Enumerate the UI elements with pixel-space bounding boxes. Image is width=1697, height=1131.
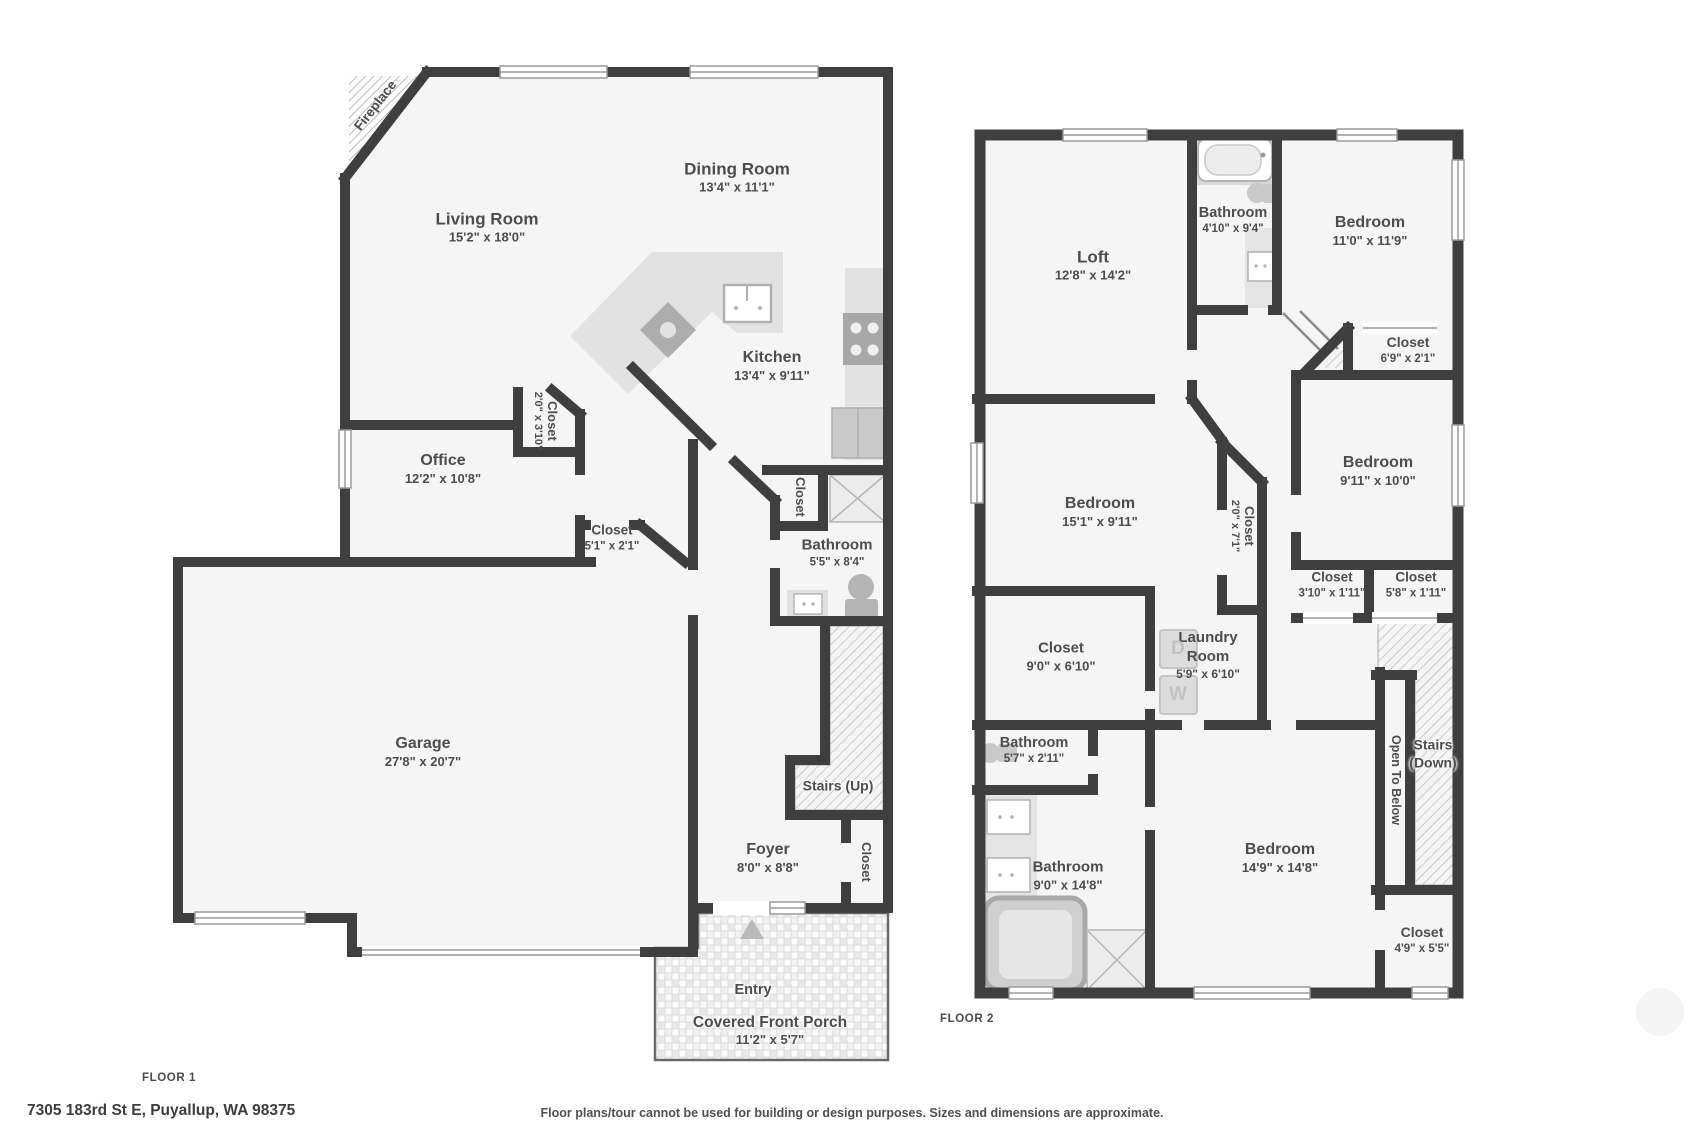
floor2-tag: FLOOR 2	[940, 1013, 994, 1025]
office-label: Office12'2" x 10'8"	[405, 451, 481, 487]
garage-label: Garage27'8" x 20'7"	[385, 734, 461, 770]
loft-label: Loft12'8" x 14'2"	[1055, 246, 1131, 284]
washer-letter: W	[1169, 684, 1187, 706]
stove-icon	[843, 313, 885, 365]
open-to-below-label: Open To Below	[1387, 735, 1403, 825]
bathroom1-label: Bathroom5'5" x 8'4"	[802, 536, 873, 569]
closet-90-label: Closet9'0" x 6'10"	[1026, 640, 1095, 675]
bathroom-57-label: Bathroom5'7" x 2'11"	[1000, 734, 1068, 767]
watermark-circle	[1636, 988, 1684, 1036]
bedroom-top-label: Bedroom11'0" x 11'9"	[1333, 213, 1408, 249]
office-closet-label: Closet2'0" x 3'10"	[530, 392, 560, 450]
bedroom-bottom-label: Bedroom14'9" x 14'8"	[1242, 840, 1318, 876]
laundry-label: Laundry Room 5'9" x 6'10"	[1176, 629, 1240, 682]
floor-plan-page: Fireplace Living Room15'2" x 18'0" Dinin…	[0, 0, 1697, 1131]
sink-icon	[987, 858, 1030, 892]
dryer-letter: D	[1171, 638, 1185, 660]
stairs-up-label: Stairs (Up)	[803, 777, 874, 795]
bathroom-top-label: Bathroom4'10" x 9'4"	[1199, 204, 1267, 237]
bath-closet-label: Closet	[792, 477, 808, 517]
bedroom-mid-left-label: Bedroom15'1" x 9'11"	[1062, 494, 1138, 530]
hall-closet-label: Closet5'1" x 2'1"	[585, 522, 640, 553]
entry-label: Entry	[734, 981, 771, 999]
sink-icon	[1248, 252, 1273, 281]
bathroom-90-label: Bathroom9'0" x 14'8"	[1033, 859, 1104, 894]
garage-door	[362, 946, 640, 959]
address: 7305 183rd St E, Puyallup, WA 98375	[27, 1102, 295, 1120]
disclaimer: Floor plans/tour cannot be used for buil…	[540, 1106, 1163, 1120]
sink-icon	[987, 800, 1030, 834]
stairs-down-label: Stairs (Down)	[1409, 737, 1456, 772]
living-room-label: Living Room15'2" x 18'0"	[436, 208, 539, 246]
closet-49-label: Closet4'9" x 5'5"	[1395, 924, 1450, 956]
closet-20-label: Closet2'0" x 7'1"	[1227, 500, 1257, 552]
closet-58-label: Closet5'8" x 1'11"	[1386, 569, 1447, 600]
floor1-footprint	[178, 72, 888, 952]
kitchen-label: Kitchen13'4" x 9'11"	[734, 348, 810, 384]
toilet-icon	[848, 574, 874, 600]
floor1-tag: FLOOR 1	[142, 1072, 196, 1084]
foyer-label: Foyer8'0" x 8'8"	[737, 840, 799, 876]
bedroom-mid-right-label: Bedroom9'11" x 10'0"	[1340, 453, 1416, 489]
dining-room-label: Dining Room13'4" x 11'1"	[684, 158, 790, 196]
foyer-closet-label: Closet	[858, 842, 874, 882]
porch-label: Covered Front Porch11'2" x 5'7"	[693, 1013, 847, 1049]
closet-310-label: Closet3'10" x 1'11"	[1299, 569, 1366, 600]
closet-69-label: Closet6'9" x 2'1"	[1381, 334, 1436, 366]
